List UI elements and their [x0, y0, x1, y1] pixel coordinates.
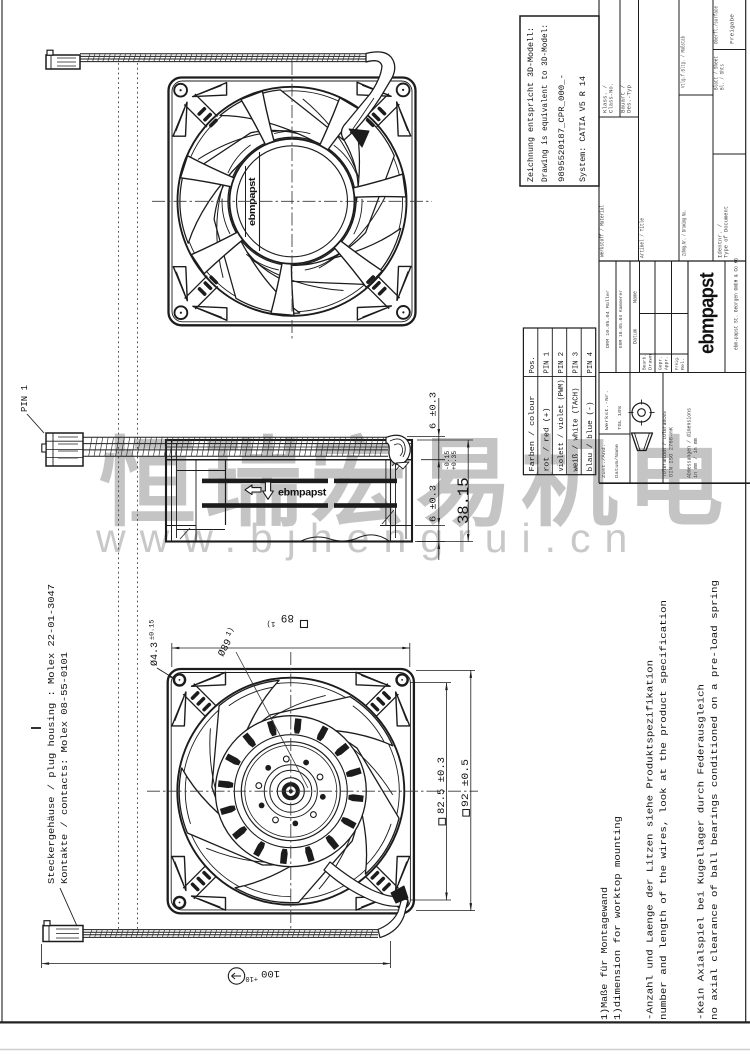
- svg-text:6 ±0.3: 6 ±0.3: [428, 485, 439, 522]
- svg-text:DRM 10.05.04 Müller: DRM 10.05.04 Müller: [605, 290, 611, 348]
- svg-text:38.15: 38.15: [455, 477, 473, 524]
- svg-text:-Anzahl und Laenge der Litzen: -Anzahl und Laenge der Litzen siehe Prod…: [645, 660, 656, 1020]
- svg-text:www.bjhengrui.cn: www.bjhengrui.cn: [95, 515, 641, 561]
- svg-text:Datum/Name: Datum/Name: [614, 444, 620, 478]
- svg-text:82.5 ±0.3: 82.5 ±0.3: [437, 757, 448, 814]
- svg-text:Oberfl./surface: Oberfl./surface: [714, 6, 720, 44]
- svg-text:+0.35: +0.35: [451, 451, 458, 470]
- svg-text:Pos.: Pos.: [529, 356, 537, 373]
- svg-text:Rel.: Rel.: [680, 358, 686, 370]
- svg-text:+10: +10: [245, 974, 258, 982]
- svg-text:System: CATIA V5 R 14: System: CATIA V5 R 14: [578, 76, 588, 182]
- svg-text:Drawn: Drawn: [648, 354, 654, 370]
- svg-text:Freig.: Freig.: [674, 356, 680, 370]
- svg-text:Abmessungen / dimensions: Abmessungen / dimensions: [687, 408, 693, 478]
- svg-text:Freigabe: Freigabe: [730, 14, 736, 44]
- svg-text:Werkst.-Nr.: Werkst.-Nr.: [604, 390, 610, 430]
- svg-text:ERM 10.05.04 Kammerer: ERM 10.05.04 Kammerer: [618, 290, 624, 348]
- svg-text:TGL 10%: TGL 10%: [617, 406, 623, 430]
- svg-text:rot / red (+): rot / red (+): [543, 408, 551, 472]
- svg-text:±0.15: ±0.15: [149, 620, 157, 640]
- svg-text:Datum: Datum: [633, 329, 639, 344]
- svg-text:Bl. / Shts: Bl. / Shts: [720, 64, 726, 90]
- svg-text:Zchng.Nr. / Drawing No.: Zchng.Nr. / Drawing No.: [682, 210, 688, 256]
- svg-text:6 ±0.3: 6 ±0.3: [428, 392, 439, 429]
- svg-text:ebm-papst St. Georgen GmbH & C: ebm-papst St. Georgen GmbH & Co KG: [733, 257, 740, 350]
- svg-text:Steckergehäuse / plug housing: Steckergehäuse / plug housing : Molex 22…: [46, 584, 57, 884]
- svg-text:weiß / white (TACH): weiß / white (TACH): [572, 388, 580, 472]
- svg-text:100: 100: [261, 967, 280, 979]
- svg-text:PIN 3: PIN 3: [572, 352, 580, 374]
- svg-text:ebmpapst: ebmpapst: [697, 272, 719, 354]
- svg-text:PIN 2: PIN 2: [558, 352, 566, 374]
- svg-text:PIN 1: PIN 1: [20, 385, 30, 412]
- svg-text:Gepr.: Gepr.: [658, 356, 664, 370]
- svg-text:Toleranzen / tolerances: Toleranzen / tolerances: [662, 411, 668, 477]
- svg-text:Zust./Änd.: Zust./Änd.: [600, 444, 607, 478]
- svg-text:1)Maße für Montagewand: 1)Maße für Montagewand: [599, 887, 610, 1020]
- svg-text:Name: Name: [633, 291, 639, 303]
- svg-text:DIN ISO 2768-mK: DIN ISO 2768-mK: [669, 427, 675, 477]
- svg-text:Werkstoff / Material: Werkstoff / Material: [600, 205, 606, 257]
- svg-text:Zeichnung entspricht 3D-Modell: Zeichnung entspricht 3D-Modell:: [526, 27, 536, 182]
- svg-text:no axial clearance of ball bea: no axial clearance of ball bearings cond…: [709, 580, 720, 1020]
- svg-text:Vtlg.f.Bltg. / Maßstab: Vtlg.f.Bltg. / Maßstab: [681, 36, 687, 88]
- svg-text:in mm / in mm: in mm / in mm: [693, 438, 699, 478]
- svg-text:89: 89: [281, 611, 294, 623]
- svg-text:Appr.: Appr.: [664, 356, 670, 370]
- svg-text:Farben / colour: Farben / colour: [529, 396, 537, 472]
- svg-text:1)dimension for worktop mounti: 1)dimension for worktop mounting: [612, 816, 623, 1020]
- svg-text:-0.15: -0.15: [444, 451, 451, 470]
- svg-text:PIN 4: PIN 4: [587, 352, 595, 374]
- svg-text:Bearb.: Bearb.: [642, 354, 648, 370]
- svg-text:Kontakte / contacts: Molex 08-: Kontakte / contacts: Molex 08-55-0101: [59, 651, 70, 884]
- svg-text:Ø4.3: Ø4.3: [149, 642, 161, 666]
- svg-text:Artikel / Title: Artikel / Title: [640, 218, 646, 258]
- svg-text:Des.-Typ: Des.-Typ: [627, 85, 633, 113]
- svg-text:blau / blue (-): blau / blue (-): [587, 402, 595, 472]
- svg-text:violett / violet (PWM): violett / violet (PWM): [558, 380, 566, 472]
- svg-text:1): 1): [266, 619, 275, 627]
- svg-text:-Kein Axialspiel bei Kugellage: -Kein Axialspiel bei Kugellager durch Fe…: [696, 684, 707, 1020]
- svg-text:ebmpapst: ebmpapst: [278, 488, 327, 499]
- svg-text:92 ±0.5: 92 ±0.5: [461, 759, 472, 807]
- svg-text:PIN 1: PIN 1: [543, 352, 551, 374]
- svg-text:Drawing is equivalent to 3D-Mo: Drawing is equivalent to 3D-Model:: [540, 24, 550, 182]
- svg-text:number and length of the wires: number and length of the wires, look at …: [658, 600, 669, 1020]
- svg-text:Class-No.: Class-No.: [609, 83, 615, 113]
- svg-text:9895520187_CPR_000_-: 9895520187_CPR_000_-: [557, 74, 567, 182]
- svg-text:Type of Document: Type of Document: [724, 206, 730, 258]
